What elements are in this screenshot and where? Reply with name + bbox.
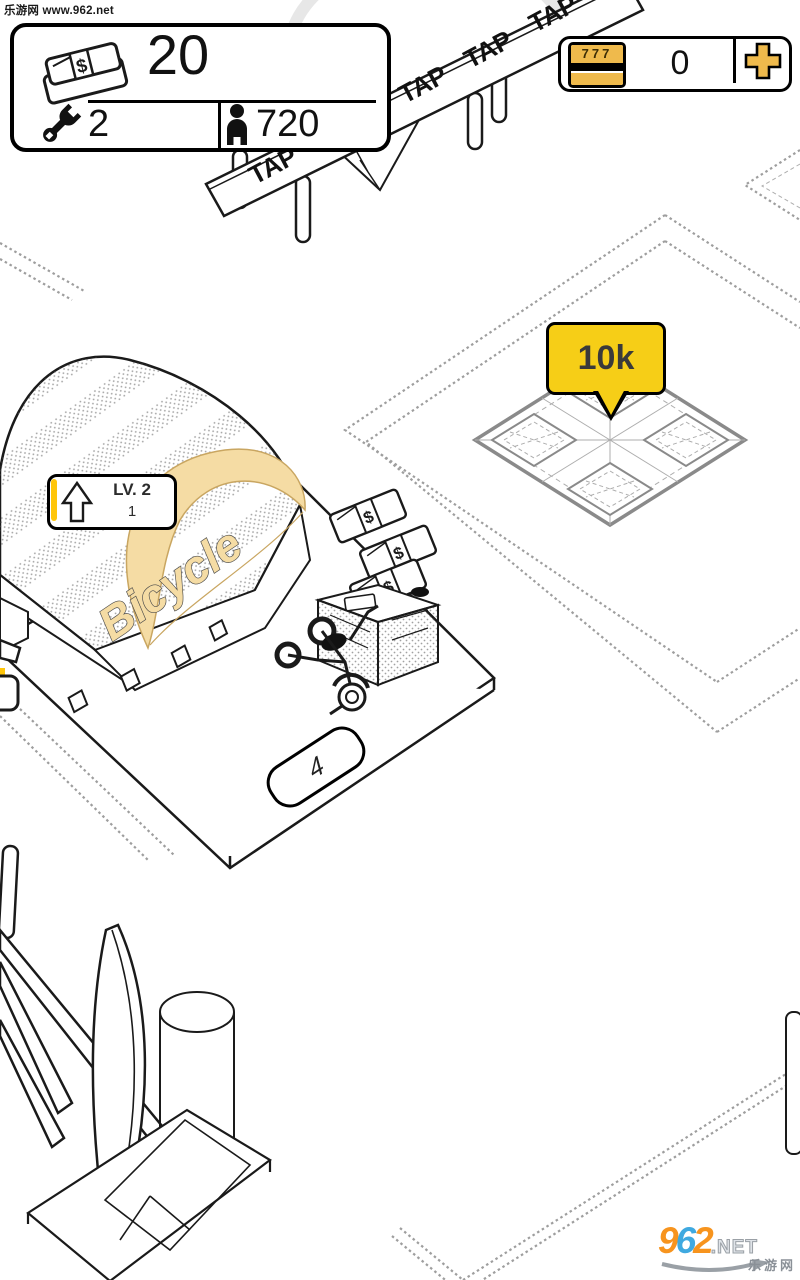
plot-price-label: 10k xyxy=(578,339,635,378)
logo-site-name: 乐游网 xyxy=(748,1255,796,1274)
logo-digit: 2 xyxy=(693,1220,711,1261)
bubble-tail xyxy=(597,389,625,415)
slot-777-icon: 777 xyxy=(568,42,626,88)
site-logo-text: 962.NET xyxy=(658,1222,758,1259)
slot-base xyxy=(571,73,623,85)
plot-price-bubble[interactable]: 10k xyxy=(546,322,666,395)
slot-stripe xyxy=(571,63,623,71)
shop-level-progress: 1 xyxy=(94,503,170,520)
shop-level-label: LV. 2 xyxy=(94,480,170,500)
site-logo: 962.NET 乐游网 xyxy=(658,1222,798,1278)
resources-panel: $ 20 2 720 xyxy=(10,23,391,152)
canopy-leg xyxy=(296,176,310,242)
panel-divider xyxy=(218,101,221,148)
workers-value: 2 xyxy=(88,103,109,146)
population-value: 720 xyxy=(256,103,319,146)
canopy-leg xyxy=(468,93,482,149)
plot-corner-north-east xyxy=(745,150,800,220)
plus-icon xyxy=(743,41,783,81)
game-screen: TAP TAP TAP TAP TAP xyxy=(0,0,800,1280)
shop-level-badge[interactable]: LV. 2 1 xyxy=(47,474,177,530)
dock-number: 4 xyxy=(306,747,327,786)
level-progress-bar xyxy=(51,479,57,521)
logo-digit: 9 xyxy=(658,1220,676,1261)
add-tokens-button[interactable] xyxy=(736,39,789,83)
upgrade-arrow-icon xyxy=(60,479,94,525)
person-icon xyxy=(222,103,252,147)
machine-structure xyxy=(0,846,270,1280)
isometric-world: TAP TAP TAP TAP TAP xyxy=(0,0,800,1280)
wrench-icon xyxy=(36,103,84,147)
cash-value: 20 xyxy=(130,21,226,88)
token-counter: 777 0 xyxy=(558,36,792,92)
logo-digit: 6 xyxy=(676,1220,694,1261)
slot-777-label: 777 xyxy=(571,45,623,63)
site-watermark-text: 乐游网 www.962.net xyxy=(4,2,114,18)
token-value: 0 xyxy=(627,44,733,83)
